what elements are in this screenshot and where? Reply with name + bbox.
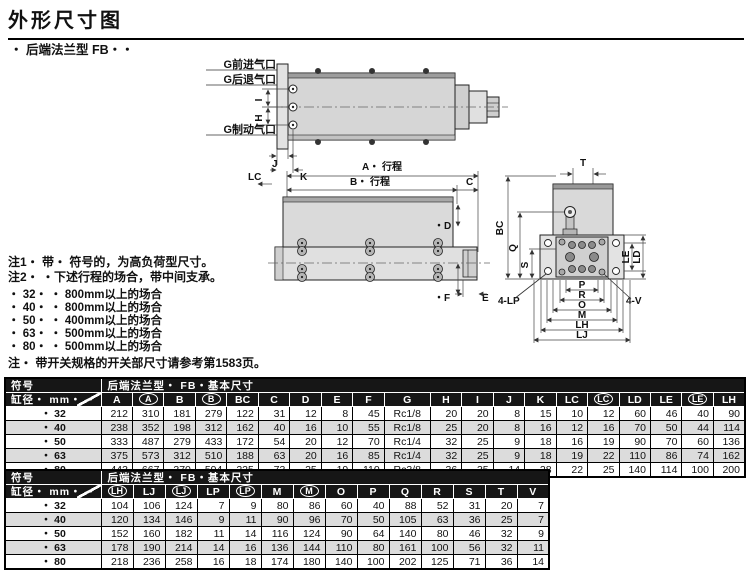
dim-cell: 352: [132, 421, 163, 435]
note-stroke: 注2・ ・下述行程的场合，带中间支承。: [8, 270, 318, 285]
dim-cell: 144: [293, 541, 325, 555]
dim-cell: 80: [261, 499, 293, 513]
dim-cell: 12: [588, 407, 619, 421]
dim-lc-label: LC: [248, 172, 261, 183]
dim-cell: 433: [195, 435, 226, 449]
col-header-b: B: [164, 393, 195, 407]
dim-cell: 14: [229, 527, 261, 541]
dim-cell: 190: [133, 541, 165, 555]
dim-cell: 16: [321, 449, 352, 463]
dim-cell: 140: [619, 463, 650, 478]
col-header-lc: LC: [556, 393, 587, 407]
dim-cell: 74: [682, 449, 713, 463]
dim-cell: 25: [430, 421, 461, 435]
basic-dimensions-table-2: 符号后端法兰型・ FB・基本尺寸缸径・ mm・ ・LHLJLJLPLPMMOPQ…: [4, 469, 550, 570]
dim-cell: 25: [588, 463, 619, 478]
dim-cell: 161: [389, 541, 421, 555]
table-row: ・ 322123101812791223112845Rc1/8202081510…: [5, 407, 745, 421]
dim-cell: 178: [101, 541, 133, 555]
col-header-q: Q: [389, 485, 421, 499]
dim-cell: 11: [229, 513, 261, 527]
dim-h-label: H: [254, 114, 265, 121]
col-header-j: J: [493, 393, 524, 407]
dim-cell: 40: [357, 499, 389, 513]
dim-cell: 110: [619, 449, 650, 463]
bore-cell: ・ 40: [5, 513, 101, 527]
dim-cell: 90: [713, 407, 745, 421]
dim-cell: 46: [453, 527, 485, 541]
dim-cell: 90: [261, 513, 293, 527]
dim-cell: 116: [261, 527, 293, 541]
dim-cell: 9: [517, 527, 549, 541]
dim-cell: 90: [325, 527, 357, 541]
dim-cell: 124: [293, 527, 325, 541]
dim-cell: 16: [525, 421, 556, 435]
stroke-case: ・ 80・ ・ 500mm以上的场合: [8, 341, 318, 354]
dim-cell: 86: [293, 499, 325, 513]
holes-v-label: 4-V: [626, 296, 642, 307]
dim-cell: 36: [485, 555, 517, 570]
dim-cell: 136: [261, 541, 293, 555]
col-header-lj-circled: LJ: [165, 485, 197, 499]
dim-cell: 19: [556, 449, 587, 463]
dim-cell: 54: [258, 435, 289, 449]
col-header-a-circled: A: [132, 393, 163, 407]
col-header-m-circled: M: [293, 485, 325, 499]
col-header-lj: LJ: [133, 485, 165, 499]
dim-cell: 100: [682, 463, 713, 478]
dim-cell: 14: [517, 555, 549, 570]
bore-diameter-header: 缸径・ mm・ ・: [5, 485, 101, 499]
stroke-case: ・ 40・ ・ 800mm以上的场合: [8, 302, 318, 315]
col-header-f: F: [353, 393, 384, 407]
dim-cell: 7: [517, 513, 549, 527]
dim-cell: 375: [101, 449, 132, 463]
dim-cell: 32: [485, 527, 517, 541]
side-view: G前进气口 G后退气口 G制动气口: [206, 57, 508, 183]
dim-cell: 70: [353, 435, 384, 449]
dim-cell: 198: [164, 421, 195, 435]
dim-cell: 136: [713, 435, 745, 449]
dim-cell: 122: [227, 407, 258, 421]
dim-i-label: I: [254, 98, 265, 101]
dim-cell: 40: [682, 407, 713, 421]
dim-e-label: E: [482, 293, 489, 304]
dim-cell: 120: [101, 513, 133, 527]
dim-cell: 90: [619, 435, 650, 449]
bore-cell: ・ 63: [5, 541, 101, 555]
dim-k-label: K: [300, 172, 308, 183]
dim-bc-label: BC: [495, 221, 506, 235]
dim-cell: 80: [357, 541, 389, 555]
dim-cell: 45: [353, 407, 384, 421]
col-header-t: T: [485, 485, 517, 499]
dim-cell: 85: [353, 449, 384, 463]
dim-cell: 10: [321, 421, 352, 435]
dim-cell: 162: [713, 449, 745, 463]
dim-cell: 214: [165, 541, 197, 555]
port-brake-label: G制动气口: [223, 122, 276, 136]
col-header-v: V: [517, 485, 549, 499]
dim-cell: 202: [389, 555, 421, 570]
dim-cell: 50: [651, 421, 682, 435]
dim-cell: 181: [164, 407, 195, 421]
dim-cell: 60: [619, 407, 650, 421]
notes-block: 注1・ 带・ 符号的，为高负荷型尺寸。 注2・ ・下述行程的场合，带中间支承。 …: [8, 255, 318, 371]
basic-dimensions-table-1: 符号后端法兰型・ FB・基本尺寸缸径・ mm・ ・AABBBCCDEFGHIJK…: [4, 377, 746, 478]
dim-cell: 96: [293, 513, 325, 527]
col-header-le: LE: [651, 393, 682, 407]
col-header-g: G: [384, 393, 430, 407]
dim-cell: 312: [195, 421, 226, 435]
dim-cell: 18: [525, 449, 556, 463]
dim-cell: 160: [133, 527, 165, 541]
dim-cell: 60: [682, 435, 713, 449]
dim-cell: 7: [517, 499, 549, 513]
dim-cell: 25: [462, 449, 493, 463]
dim-cell: 100: [421, 541, 453, 555]
dim-cell: 25: [462, 435, 493, 449]
col-header-ld: LD: [619, 393, 650, 407]
dim-cell: 14: [197, 541, 229, 555]
dim-cell: 46: [651, 407, 682, 421]
dim-cell: 32: [430, 449, 461, 463]
dim-cell: Rc1/4: [384, 435, 430, 449]
dim-cell: 114: [651, 463, 682, 478]
dim-c-label: C: [466, 177, 473, 188]
col-header-r: R: [421, 485, 453, 499]
dim-cell: 9: [197, 513, 229, 527]
page-title: 外形尺寸图: [8, 4, 744, 40]
col-header-lc-circled: LC: [588, 393, 619, 407]
bore-cell: ・ 32: [5, 407, 101, 421]
dim-cell: 9: [493, 449, 524, 463]
table-row: ・ 5033348727943317254201270Rc1/432259181…: [5, 435, 745, 449]
dim-cell: 55: [353, 421, 384, 435]
col-header-k: K: [525, 393, 556, 407]
dim-cell: Rc1/8: [384, 421, 430, 435]
col-header-p: P: [357, 485, 389, 499]
dim-cell: 64: [357, 527, 389, 541]
dim-cell: 180: [293, 555, 325, 570]
dim-cell: 32: [485, 541, 517, 555]
dim-cell: 12: [321, 435, 352, 449]
dim-cell: 20: [485, 499, 517, 513]
dim-le-label: LE: [621, 250, 632, 263]
dim-cell: 487: [132, 435, 163, 449]
dim-cell: 212: [101, 407, 132, 421]
dim-cell: 70: [619, 421, 650, 435]
dim-a-stroke-label: A・ 行程: [362, 160, 402, 173]
dim-cell: 182: [165, 527, 197, 541]
dim-cell: Rc1/4: [384, 449, 430, 463]
dim-cell: 200: [713, 463, 745, 478]
bore-cell: ・ 32: [5, 499, 101, 513]
dim-cell: 20: [290, 435, 321, 449]
dim-cell: 16: [229, 541, 261, 555]
table-row: ・ 6337557331251018863201685Rc1/432259181…: [5, 449, 745, 463]
dim-cell: 174: [261, 555, 293, 570]
col-header-lp-circled: LP: [229, 485, 261, 499]
dim-cell: 16: [556, 435, 587, 449]
dim-d-label: ・D: [434, 221, 451, 232]
dim-cell: 11: [517, 541, 549, 555]
dim-cell: 236: [133, 555, 165, 570]
col-header-c: C: [258, 393, 289, 407]
col-header-i: I: [462, 393, 493, 407]
dim-cell: 134: [133, 513, 165, 527]
col-header-a: A: [101, 393, 132, 407]
dim-cell: 16: [290, 421, 321, 435]
dim-ld-label: LD: [632, 250, 643, 263]
dim-cell: 104: [101, 499, 133, 513]
dim-cell: 52: [421, 499, 453, 513]
dim-cell: 16: [588, 421, 619, 435]
dim-cell: 56: [453, 541, 485, 555]
note-high-load: 注1・ 带・ 符号的，为高负荷型尺寸。: [8, 255, 318, 270]
dim-cell: 20: [430, 407, 461, 421]
table-row: ・ 80218236258161817418014010020212571361…: [5, 555, 549, 570]
dim-cell: 573: [132, 449, 163, 463]
symbol-header: 符号: [5, 378, 101, 393]
dim-cell: 10: [556, 407, 587, 421]
dim-cell: 40: [258, 421, 289, 435]
dim-cell: 86: [651, 449, 682, 463]
dim-cell: 172: [227, 435, 258, 449]
dim-cell: 125: [421, 555, 453, 570]
dim-cell: 18: [525, 435, 556, 449]
dim-cell: 71: [453, 555, 485, 570]
dim-cell: 218: [101, 555, 133, 570]
dim-cell: 140: [325, 555, 357, 570]
bore-diameter-header: 缸径・ mm・ ・: [5, 393, 101, 407]
dim-cell: 36: [453, 513, 485, 527]
dim-cell: Rc1/8: [384, 407, 430, 421]
table-row: ・ 63178190214141613614411080161100563211: [5, 541, 549, 555]
dim-cell: 7: [197, 499, 229, 513]
dim-cell: 312: [164, 449, 195, 463]
holes-lp-label: 4-LP: [498, 296, 520, 307]
dim-cell: 100: [357, 555, 389, 570]
col-header-o: O: [325, 485, 357, 499]
dim-cell: 70: [325, 513, 357, 527]
bore-cell: ・ 50: [5, 435, 101, 449]
dim-cell: 18: [229, 555, 261, 570]
dim-cell: 110: [325, 541, 357, 555]
dim-cell: 188: [227, 449, 258, 463]
dim-j-label: J: [272, 159, 278, 170]
dim-cell: 31: [258, 407, 289, 421]
dim-cell: 22: [588, 449, 619, 463]
dim-cell: 258: [165, 555, 197, 570]
col-header-e: E: [321, 393, 352, 407]
dim-cell: 20: [462, 421, 493, 435]
dim-cell: 12: [290, 407, 321, 421]
catalog-page: { "page": { "title": "外形尺寸图", "subtitle"…: [0, 0, 750, 573]
dim-cell: 105: [389, 513, 421, 527]
dim-cell: 510: [195, 449, 226, 463]
dim-cell: 162: [227, 421, 258, 435]
col-header-lp: LP: [197, 485, 229, 499]
col-header-m: M: [261, 485, 293, 499]
dim-cell: 63: [421, 513, 453, 527]
port-retract-label: G后退气口: [223, 72, 276, 86]
table-row: ・ 4023835219831216240161055Rc1/825208161…: [5, 421, 745, 435]
col-header-b-circled: B: [195, 393, 226, 407]
dim-cell: 8: [493, 407, 524, 421]
dim-cell: 146: [165, 513, 197, 527]
note-switch: 注・ 带开关规格的开关部尺寸请参考第1583页。: [8, 356, 318, 371]
dim-cell: 16: [197, 555, 229, 570]
dim-cell: 32: [430, 435, 461, 449]
col-header-s: S: [453, 485, 485, 499]
dim-cell: 60: [325, 499, 357, 513]
dim-cell: 25: [485, 513, 517, 527]
dim-cell: 9: [229, 499, 261, 513]
dim-cell: 8: [321, 407, 352, 421]
stroke-case: ・ 50・ ・ 400mm以上的场合: [8, 315, 318, 328]
dim-cell: 19: [588, 435, 619, 449]
port-advance-label: G前进气口: [223, 57, 276, 71]
dim-cell: 44: [682, 421, 713, 435]
col-header-h: H: [430, 393, 461, 407]
dim-s-label: S: [520, 261, 531, 268]
col-header-le-circled: LE: [682, 393, 713, 407]
dim-cell: 9: [493, 435, 524, 449]
table-row: ・ 321041061247980866040885231207: [5, 499, 549, 513]
dim-t-label: T: [580, 158, 586, 169]
col-header-lh-circled: LH: [101, 485, 133, 499]
table-row: ・ 50152160182111411612490641408046329: [5, 527, 549, 541]
dim-lj-label: LJ: [576, 330, 588, 341]
table-title: 后端法兰型・ FB・基本尺寸: [101, 378, 745, 393]
bore-cell: ・ 50: [5, 527, 101, 541]
end-view: T: [495, 158, 646, 343]
dim-cell: 11: [197, 527, 229, 541]
dim-cell: 63: [258, 449, 289, 463]
dim-cell: 124: [165, 499, 197, 513]
dim-cell: 279: [195, 407, 226, 421]
dim-cell: 140: [389, 527, 421, 541]
dim-cell: 106: [133, 499, 165, 513]
dim-cell: 152: [101, 527, 133, 541]
dim-cell: 8: [493, 421, 524, 435]
stroke-case: ・ 63・ ・ 500mm以上的场合: [8, 328, 318, 341]
symbol-header: 符号: [5, 470, 101, 485]
table-row: ・ 40120134146911909670501056336257: [5, 513, 549, 527]
dim-cell: 88: [389, 499, 421, 513]
dim-cell: 50: [357, 513, 389, 527]
bore-cell: ・ 80: [5, 555, 101, 570]
bore-cell: ・ 63: [5, 449, 101, 463]
dim-cell: 80: [421, 527, 453, 541]
table-title: 后端法兰型・ FB・基本尺寸: [101, 470, 549, 485]
dim-cell: 12: [556, 421, 587, 435]
col-header-d: D: [290, 393, 321, 407]
dim-cell: 114: [713, 421, 745, 435]
col-header-lh: LH: [713, 393, 745, 407]
dim-b-stroke-label: B・ 行程: [350, 175, 390, 188]
dim-f-label: ・F: [434, 293, 450, 304]
dim-cell: 279: [164, 435, 195, 449]
dim-cell: 20: [462, 407, 493, 421]
dim-q-label: Q: [508, 244, 519, 252]
dim-cell: 333: [101, 435, 132, 449]
dim-cell: 70: [651, 435, 682, 449]
stroke-case: ・ 32・ ・ 800mm以上的场合: [8, 289, 318, 302]
dim-cell: 238: [101, 421, 132, 435]
dim-cell: 31: [453, 499, 485, 513]
col-header-bc: BC: [227, 393, 258, 407]
dim-cell: 15: [525, 407, 556, 421]
dim-cell: 310: [132, 407, 163, 421]
dim-cell: 22: [556, 463, 587, 478]
dim-cell: 20: [290, 449, 321, 463]
bore-cell: ・ 40: [5, 421, 101, 435]
